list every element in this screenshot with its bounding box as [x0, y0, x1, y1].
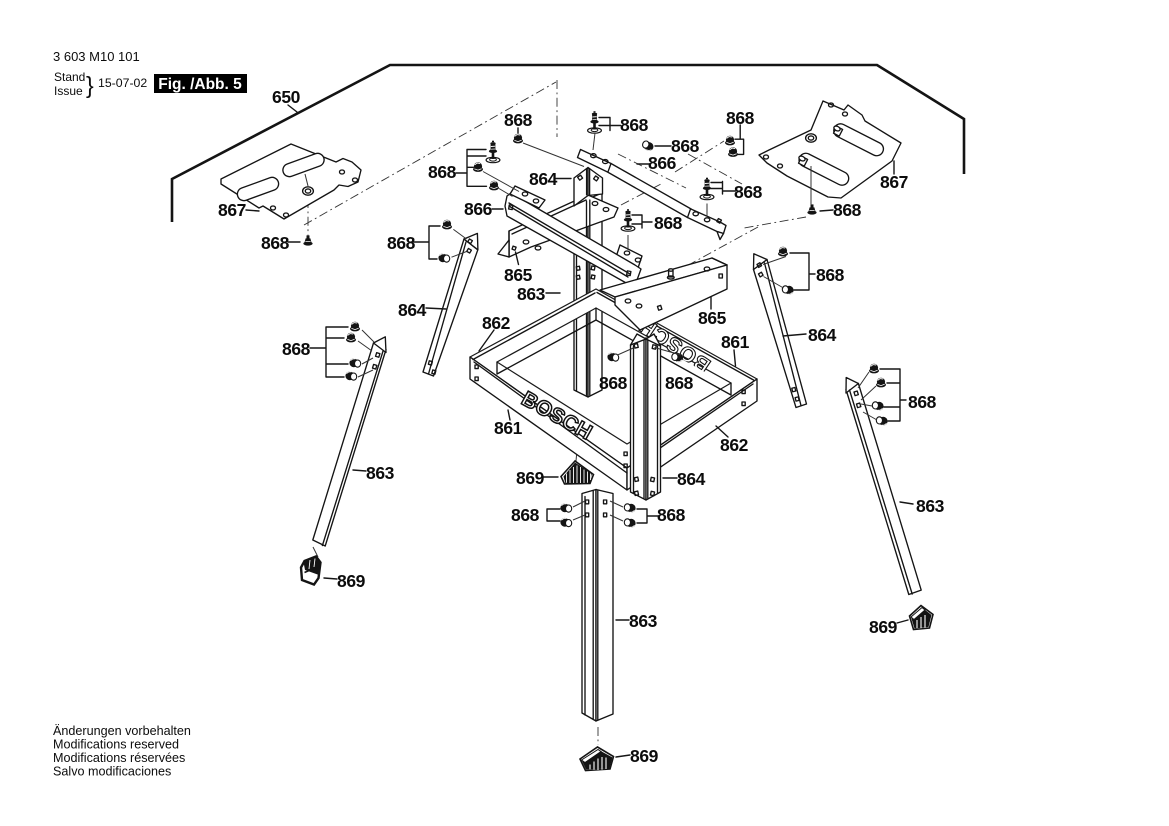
svg-text:868: 868 [908, 392, 937, 412]
svg-text:868: 868 [654, 213, 683, 233]
svg-text:3 603 M10 101: 3 603 M10 101 [53, 49, 140, 64]
svg-text:866: 866 [464, 199, 493, 219]
svg-text:650: 650 [272, 87, 301, 107]
svg-text:868: 868 [657, 505, 686, 525]
svg-text:868: 868 [734, 182, 763, 202]
svg-text:868: 868 [620, 115, 649, 135]
svg-text:868: 868 [387, 233, 416, 253]
svg-text:865: 865 [698, 308, 727, 328]
svg-text:864: 864 [398, 300, 427, 320]
svg-text:863: 863 [629, 611, 658, 631]
svg-text:862: 862 [482, 313, 511, 333]
svg-text:868: 868 [261, 233, 290, 253]
svg-text:863: 863 [517, 284, 546, 304]
svg-text:869: 869 [630, 746, 659, 766]
svg-text:862: 862 [720, 435, 749, 455]
svg-text:Änderungen vorbehalten: Änderungen vorbehalten [53, 724, 191, 738]
svg-text:867: 867 [218, 200, 246, 220]
svg-text:869: 869 [869, 617, 898, 637]
svg-text:867: 867 [880, 172, 908, 192]
svg-text:861: 861 [494, 418, 523, 438]
svg-text:Issue: Issue [54, 84, 83, 98]
svg-text:Salvo modificaciones: Salvo modificaciones [53, 765, 171, 779]
svg-text:868: 868 [511, 505, 540, 525]
svg-text:868: 868 [428, 162, 457, 182]
svg-text:865: 865 [504, 265, 533, 285]
svg-text:863: 863 [916, 496, 945, 516]
svg-text:Fig. /Abb. 5: Fig. /Abb. 5 [158, 76, 242, 93]
svg-text:}: } [86, 72, 94, 98]
svg-text:864: 864 [808, 325, 837, 345]
svg-text:868: 868 [665, 373, 694, 393]
svg-text:864: 864 [677, 469, 706, 489]
svg-text:868: 868 [504, 110, 533, 130]
svg-text:868: 868 [726, 108, 755, 128]
svg-text:861: 861 [721, 332, 750, 352]
svg-text:Modifications réservées: Modifications réservées [53, 751, 185, 765]
svg-text:Stand: Stand [54, 70, 85, 84]
svg-text:868: 868 [833, 200, 862, 220]
svg-text:868: 868 [282, 339, 311, 359]
svg-text:863: 863 [366, 463, 395, 483]
svg-text:868: 868 [599, 373, 628, 393]
svg-text:869: 869 [337, 571, 366, 591]
svg-text:869: 869 [516, 468, 545, 488]
svg-text:868: 868 [816, 265, 845, 285]
svg-text:15-07-02: 15-07-02 [98, 76, 147, 90]
svg-text:864: 864 [529, 169, 558, 189]
svg-text:866: 866 [648, 153, 677, 173]
svg-text:Modifications reserved: Modifications reserved [53, 738, 179, 752]
